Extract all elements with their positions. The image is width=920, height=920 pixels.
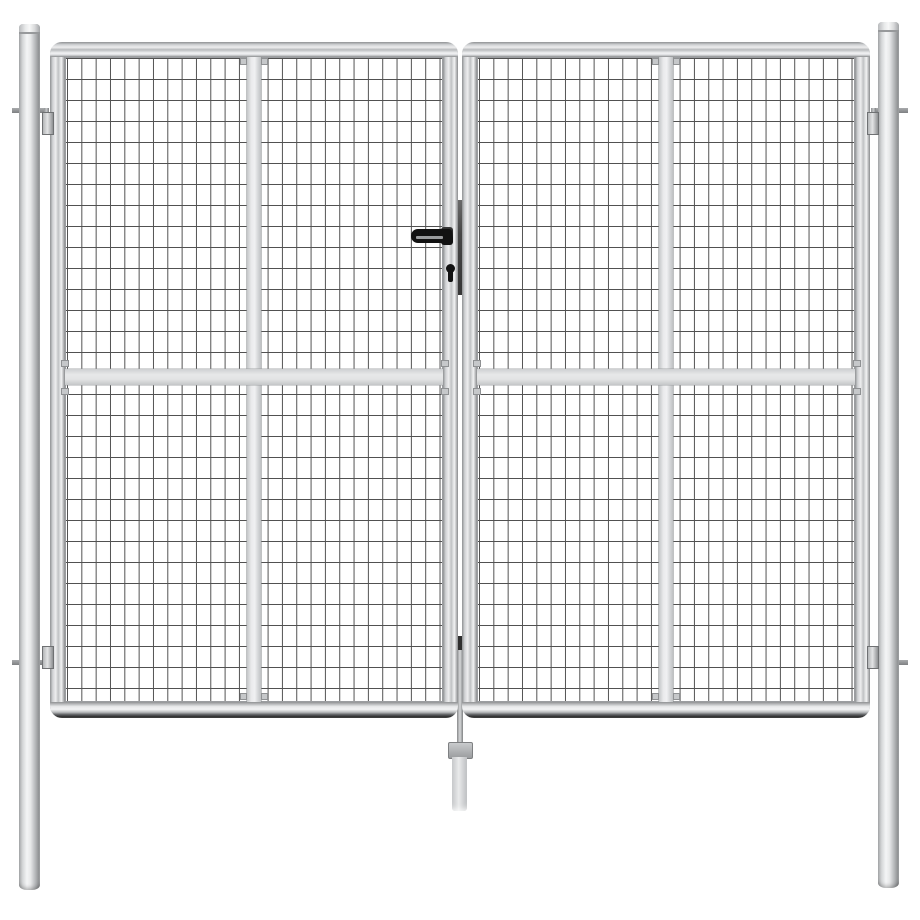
drop-rod-ground-sleeve (452, 757, 467, 811)
brace-clip (261, 58, 268, 65)
hinge-sleeve-bottom-right (867, 646, 879, 669)
frame-tube-bottom (462, 702, 870, 718)
brace-clip (61, 360, 69, 367)
gate-post-right (878, 22, 899, 888)
door-handle (411, 229, 452, 243)
product-photo-gate (0, 0, 920, 920)
frame-tube-left (50, 42, 65, 718)
gate-leaf-right (462, 42, 870, 718)
post-cap-left (19, 24, 40, 34)
brace-clip (673, 58, 680, 65)
brace-clip (853, 388, 861, 395)
handle-slot (416, 236, 443, 239)
hinge-sleeve-top-left (42, 112, 54, 135)
gate-leaf-left (50, 42, 458, 718)
frame-tube-bottom (50, 702, 458, 718)
horizontal-brace-right (477, 369, 855, 385)
brace-clip (652, 693, 659, 700)
keyhole-slot (448, 271, 453, 282)
frame-tube-top (462, 42, 870, 57)
frame-tube-top (50, 42, 458, 57)
frame-tube-right (443, 42, 458, 718)
frame-tube-right (855, 42, 870, 718)
brace-clip (261, 693, 268, 700)
brace-clip (652, 58, 659, 65)
brace-clip (853, 360, 861, 367)
brace-clip (240, 58, 247, 65)
brace-clip (61, 388, 69, 395)
brace-clip (441, 360, 449, 367)
hinge-sleeve-top-right (867, 112, 879, 135)
hinge-sleeve-bottom-left (42, 646, 54, 669)
horizontal-brace-left (65, 369, 443, 385)
frame-tube-left (462, 42, 477, 718)
brace-clip (473, 360, 481, 367)
brace-clip (240, 693, 247, 700)
brace-clip (441, 388, 449, 395)
brace-clip (673, 693, 680, 700)
brace-clip (473, 388, 481, 395)
post-cap-right (878, 22, 899, 32)
gate-post-left (19, 24, 40, 890)
